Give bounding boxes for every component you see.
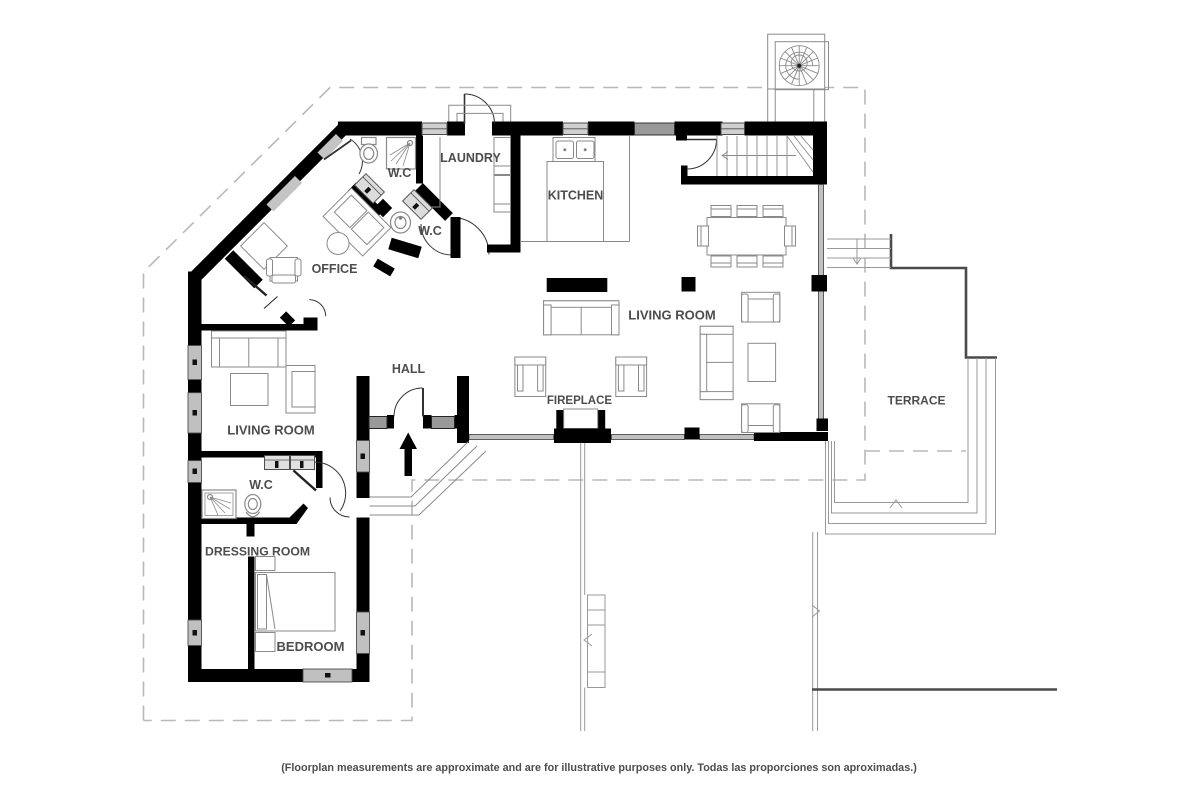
svg-text:(Floorplan measurements are ap: (Floorplan measurements are approximate … xyxy=(281,762,917,774)
svg-text:LAUNDRY: LAUNDRY xyxy=(440,151,501,165)
svg-text:W.C: W.C xyxy=(418,224,442,238)
svg-text:LIVING ROOM: LIVING ROOM xyxy=(227,423,314,438)
svg-text:LIVING ROOM: LIVING ROOM xyxy=(628,308,715,323)
svg-text:DRESSING ROOM: DRESSING ROOM xyxy=(205,545,310,559)
svg-text:KITCHEN: KITCHEN xyxy=(548,189,604,203)
svg-text:TERRACE: TERRACE xyxy=(887,394,945,408)
svg-text:OFFICE: OFFICE xyxy=(312,262,358,276)
svg-text:HALL: HALL xyxy=(392,362,426,376)
svg-text:FIREPLACE: FIREPLACE xyxy=(547,395,613,407)
svg-text:W.C: W.C xyxy=(388,166,412,180)
svg-text:BEDROOM: BEDROOM xyxy=(277,639,345,654)
svg-text:W.C: W.C xyxy=(249,478,273,492)
